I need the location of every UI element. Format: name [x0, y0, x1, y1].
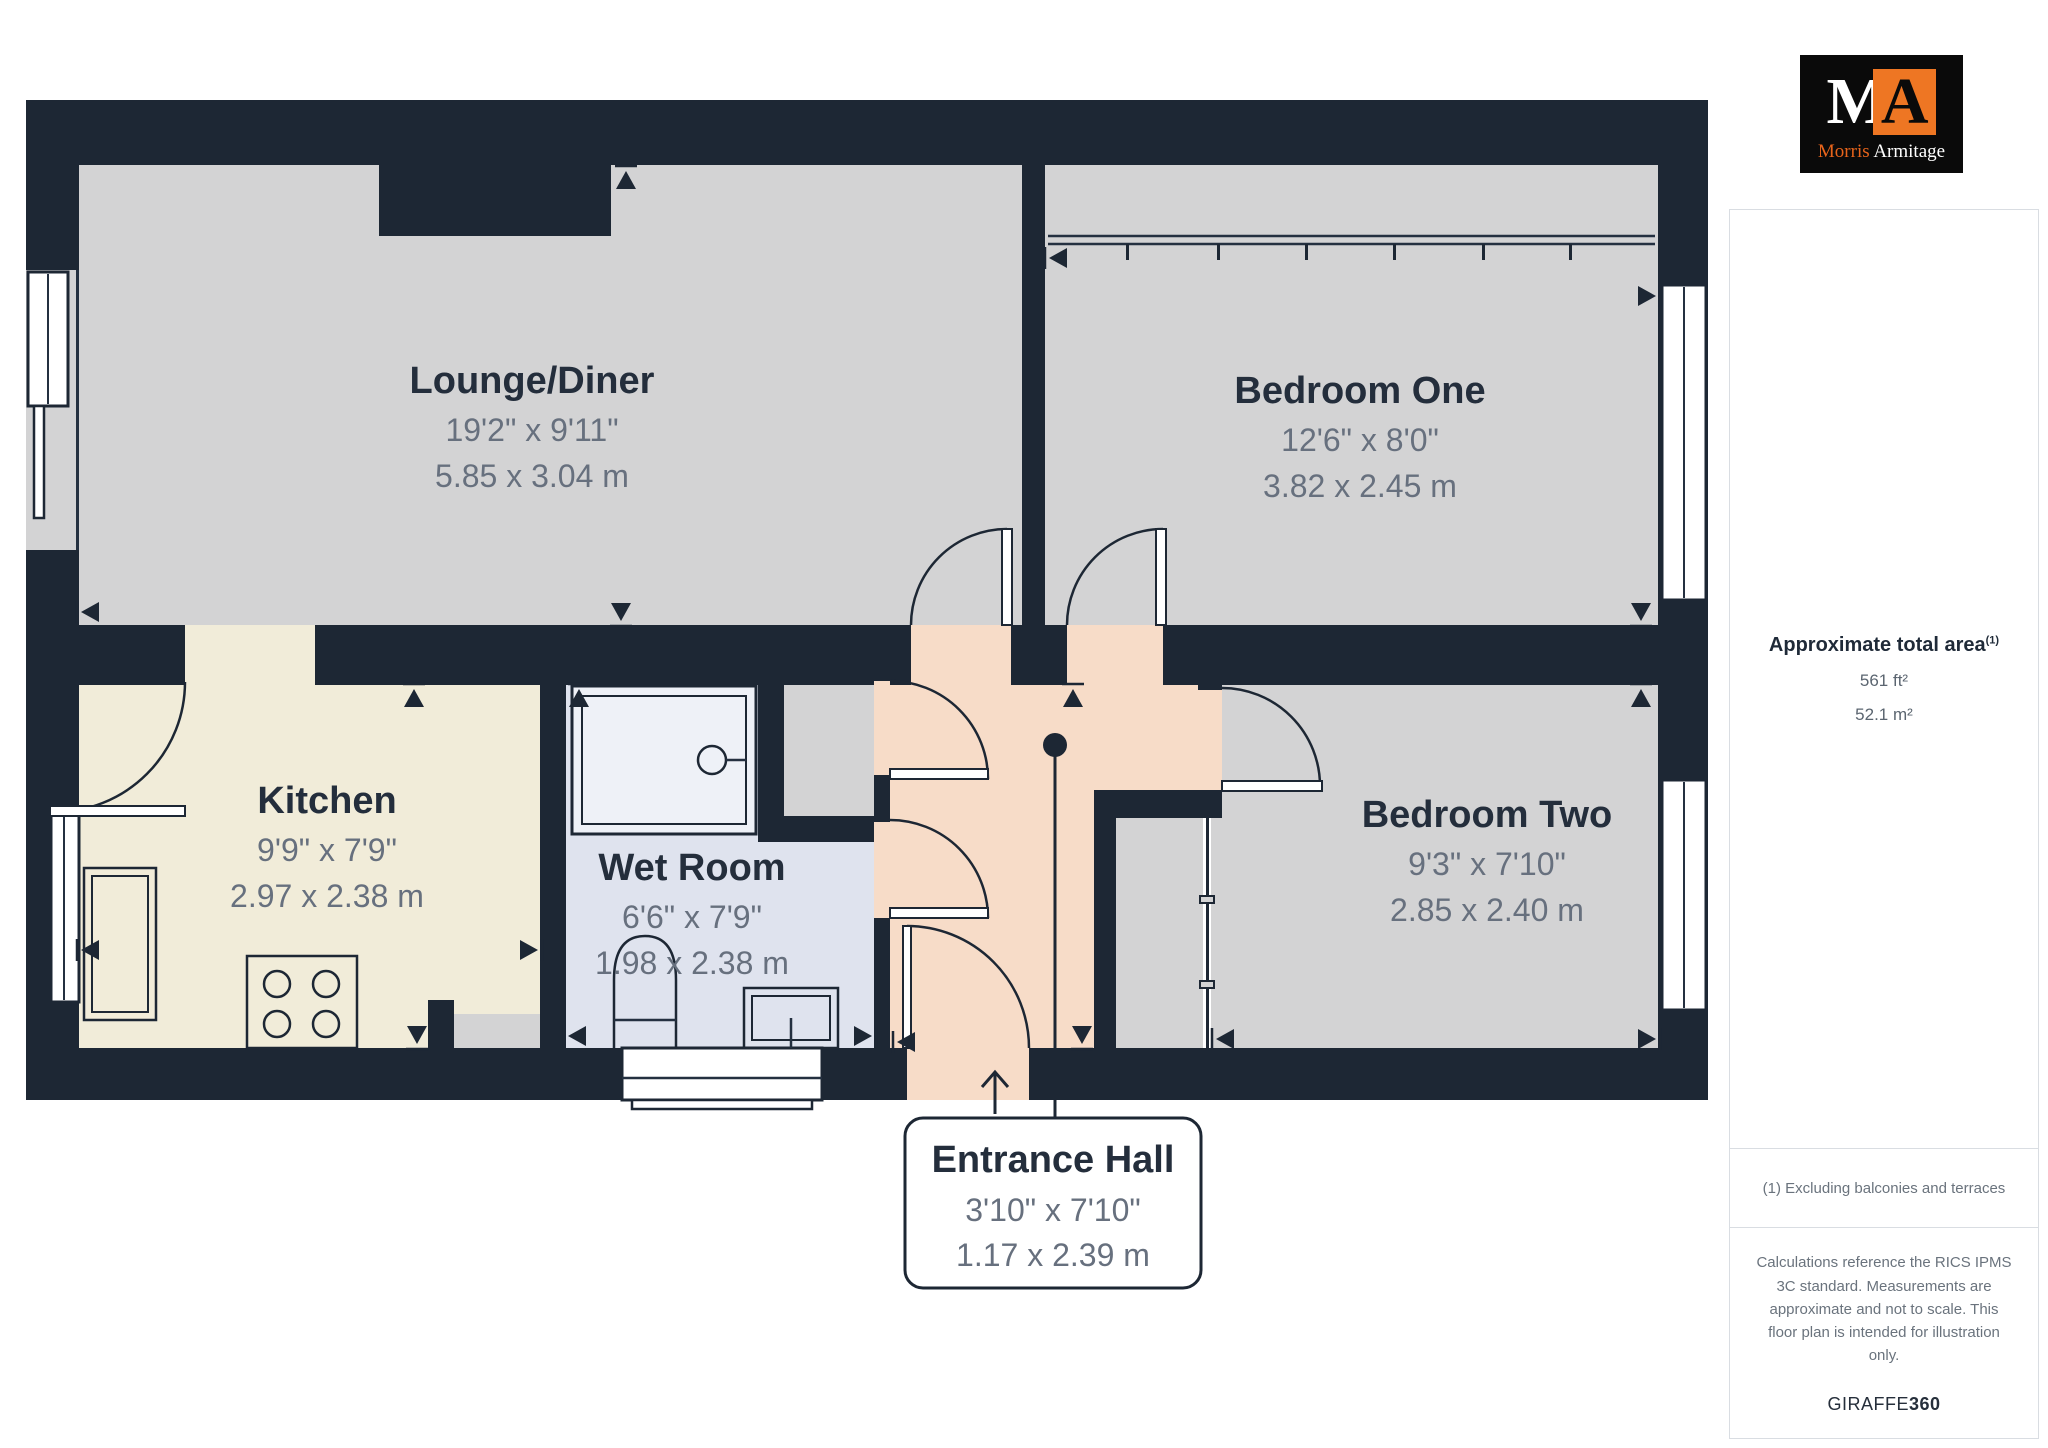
lounge-name: Lounge/Diner: [410, 360, 655, 402]
lounge-imperial: 19'2" x 9'11": [445, 412, 618, 448]
lounge-metric: 5.85 x 3.04 m: [435, 458, 629, 494]
total-area-metric: 52.1 m²: [1855, 705, 1913, 725]
wall-closet-one-left: [758, 680, 784, 816]
wall-lounge-bedroom-one: [1022, 100, 1045, 625]
bedroom-two-metric: 2.85 x 2.40 m: [1390, 892, 1584, 928]
doorway-kitchen: [185, 625, 315, 685]
hall-name: Entrance Hall: [932, 1139, 1175, 1181]
doorway-front: [907, 1048, 1029, 1100]
total-area-superscript: (1): [1986, 634, 1999, 646]
entrance-steps: [622, 1048, 822, 1109]
hall-metric: 1.17 x 2.39 m: [956, 1237, 1150, 1273]
total-area-panel: Approximate total area(1) 561 ft² 52.1 m…: [1729, 209, 2039, 1149]
shower: [572, 686, 756, 834]
wall-chimney-notch: [379, 160, 611, 236]
brand-name: GIRAFFE: [1827, 1394, 1909, 1414]
doorway-lounge: [911, 625, 1011, 685]
wall-bottom: [26, 1048, 1708, 1100]
wetroom-imperial: 6'6" x 7'9": [622, 899, 762, 935]
wall-left-upper: [26, 100, 79, 272]
hall-imperial: 3'10" x 7'10": [965, 1192, 1141, 1228]
total-area-imperial: 561 ft²: [1860, 671, 1908, 691]
monogram-a: A: [1881, 65, 1929, 138]
doorway-closet-one: [874, 681, 890, 775]
closet-one-floor: [784, 680, 874, 816]
brand-mark: GIRAFFE360: [1827, 1394, 1940, 1415]
agency-logo: M A Morris Armitage: [1800, 55, 1963, 173]
doorway-wetroom: [874, 822, 890, 918]
doorway-bedroom-two: [1198, 690, 1222, 790]
brand-suffix: 360: [1909, 1394, 1941, 1414]
wall-hall-bed2-top: [1198, 685, 1222, 690]
entrance-hall-callout: Entrance Hall 3'10" x 7'10" 1.17 x 2.39 …: [905, 1118, 1201, 1288]
bedroom-two-imperial: 9'3" x 7'10": [1408, 846, 1566, 882]
wall-kitchen-wetroom: [540, 685, 566, 1048]
kitchen-name: Kitchen: [257, 780, 396, 822]
footnote-text: (1) Excluding balconies and terraces: [1763, 1180, 2006, 1197]
wall-wetroom-hall-mid: [874, 775, 890, 822]
bedroom-two-name: Bedroom Two: [1362, 794, 1613, 836]
wall-closet-two-top: [1094, 790, 1222, 818]
wetroom-metric: 1.98 x 2.38 m: [595, 945, 789, 981]
closet-two-floor: [1116, 818, 1203, 1048]
window-bedroom-two-right: [1662, 780, 1706, 1010]
wall-kitchen-stub: [428, 1000, 454, 1048]
kitchen-imperial: 9'9" x 7'9": [257, 832, 397, 868]
footnote-panel: (1) Excluding balconies and terraces: [1729, 1148, 2039, 1228]
wall-hall-closet-two: [1094, 818, 1116, 1048]
agency-name-first: Morris: [1818, 141, 1870, 162]
hall-leader-dot: [1043, 733, 1067, 757]
doorway-bedroom-one: [1067, 625, 1163, 685]
wall-top: [26, 100, 1708, 165]
window-kitchen-left: [51, 812, 79, 1002]
bedroom-one-imperial: 12'6" x 8'0": [1281, 422, 1439, 458]
stove: [247, 956, 357, 1048]
bedroom-one-name: Bedroom One: [1234, 370, 1485, 412]
floorplan-page: Lounge/Diner 19'2" x 9'11" 5.85 x 3.04 m…: [0, 0, 2048, 1448]
agency-name-last: Armitage: [1873, 141, 1945, 162]
wall-closet-one-bottom: [758, 816, 874, 842]
bedroom-one-metric: 3.82 x 2.45 m: [1263, 468, 1457, 504]
agency-name: Morris Armitage: [1818, 141, 1945, 163]
agency-monogram: M A: [1827, 65, 1937, 139]
window-bedroom-one-right: [1662, 285, 1706, 600]
wetroom-name: Wet Room: [598, 847, 785, 889]
disclaimer-text: Calculations reference the RICS IPMS 3C …: [1754, 1251, 2014, 1367]
kitchen-recess: [454, 1014, 540, 1048]
monogram-a-box: A: [1873, 69, 1937, 135]
kitchen-metric: 2.97 x 2.38 m: [230, 878, 424, 914]
total-area-title: Approximate total area(1): [1769, 634, 1999, 657]
disclaimer-panel: Calculations reference the RICS IPMS 3C …: [1729, 1227, 2039, 1439]
